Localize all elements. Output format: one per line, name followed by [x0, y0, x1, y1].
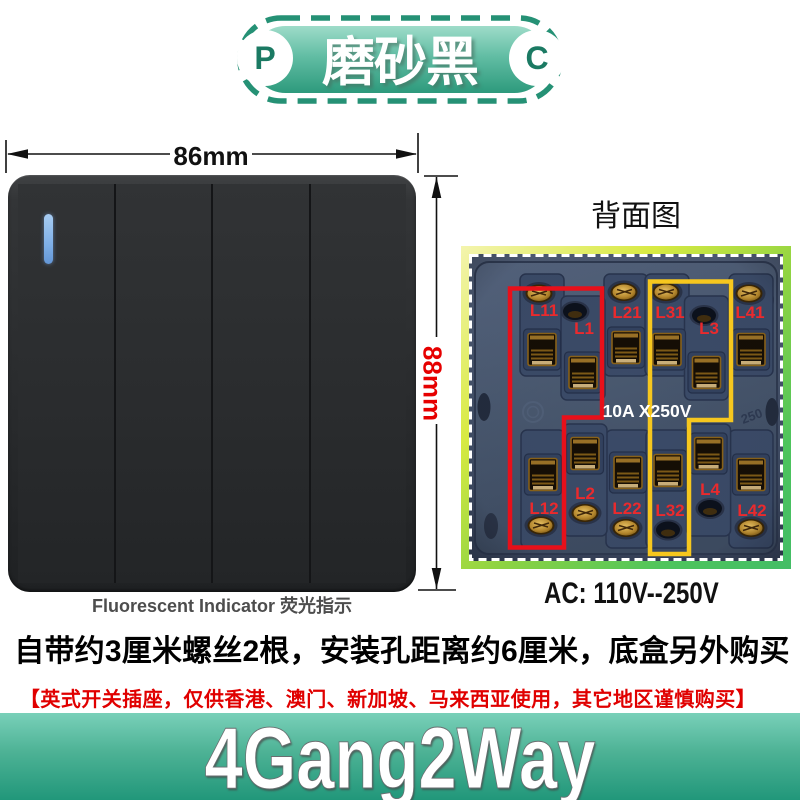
svg-text:L2: L2 [575, 484, 595, 503]
svg-text:L22: L22 [612, 499, 641, 518]
svg-text:L12: L12 [529, 499, 558, 518]
svg-text:L31: L31 [655, 303, 684, 322]
svg-text:L4: L4 [700, 480, 720, 499]
svg-text:L41: L41 [735, 303, 764, 322]
svg-text:L42: L42 [737, 501, 766, 520]
svg-text:L32: L32 [655, 501, 684, 520]
svg-text:L21: L21 [612, 303, 641, 322]
svg-text:L1: L1 [574, 319, 594, 338]
svg-text:L11: L11 [530, 301, 558, 320]
svg-text:L3: L3 [699, 319, 719, 338]
svg-text:10A X250V: 10A X250V [603, 401, 692, 421]
